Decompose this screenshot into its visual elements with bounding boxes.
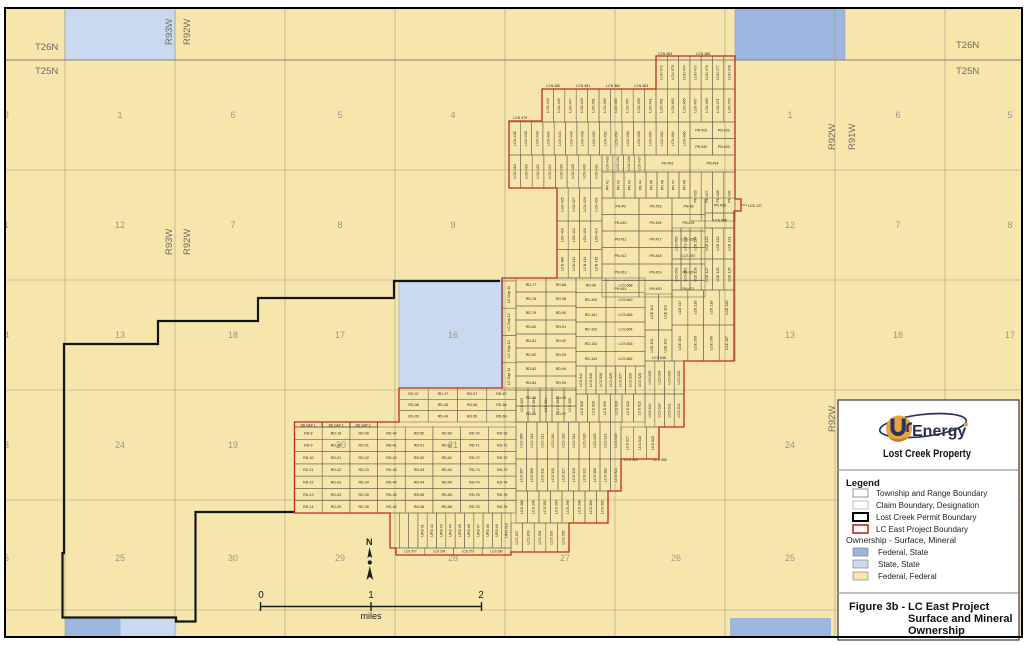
svg-text:RD-95: RD-95 xyxy=(556,381,566,385)
svg-text:LCS 312: LCS 312 xyxy=(540,434,544,448)
svg-text:RD-31: RD-31 xyxy=(359,444,369,448)
svg-text:R93W: R93W xyxy=(164,229,175,255)
svg-text:PN #24: PN #24 xyxy=(683,221,695,225)
svg-text:RD-84: RD-84 xyxy=(526,381,536,385)
svg-text:UFO #6: UFO #6 xyxy=(467,524,471,537)
svg-text:RD-10: RD-10 xyxy=(303,456,313,460)
svg-text:LCN 454: LCN 454 xyxy=(615,131,619,145)
svg-text:RD-79: RD-79 xyxy=(526,311,536,315)
svg-text:RD-59: RD-59 xyxy=(467,415,477,419)
svg-text:RD GAP 1: RD GAP 1 xyxy=(301,423,316,427)
svg-text:RD-68: RD-68 xyxy=(496,403,506,407)
svg-text:RD-43: RD-43 xyxy=(386,468,396,472)
svg-text:LC East Project Boundary: LC East Project Boundary xyxy=(876,525,968,534)
svg-text:RD-53: RD-53 xyxy=(414,468,424,472)
svg-text:LCS 313: LCS 313 xyxy=(530,434,534,448)
svg-text:RD-78: RD-78 xyxy=(497,431,507,435)
svg-text:UFO #7: UFO #7 xyxy=(477,524,481,537)
svg-text:LC Gap 13: LC Gap 13 xyxy=(507,340,511,357)
svg-text:LCN 477: LCN 477 xyxy=(716,65,720,79)
svg-text:LCS 378: LCS 378 xyxy=(433,550,446,554)
svg-text:LCN 457: LCN 457 xyxy=(626,98,630,112)
svg-text:PN #4: PN #4 xyxy=(639,180,643,190)
svg-text:N: N xyxy=(366,537,373,547)
svg-text:RD-49: RD-49 xyxy=(438,415,448,419)
svg-text:RD-35: RD-35 xyxy=(359,493,369,497)
svg-text:RD-11: RD-11 xyxy=(303,468,313,472)
svg-text:T25N: T25N xyxy=(956,66,979,77)
svg-text:RD-74: RD-74 xyxy=(497,481,507,485)
svg-text:RD-52: RD-52 xyxy=(414,456,424,460)
svg-text:LCN 471: LCN 471 xyxy=(716,98,720,112)
svg-text:RD-104: RD-104 xyxy=(585,357,597,361)
svg-text:LCE 101: LCE 101 xyxy=(650,339,654,353)
svg-text:RD-38: RD-38 xyxy=(408,403,418,407)
svg-text:LCN 458: LCN 458 xyxy=(637,131,641,145)
svg-text:PN #14: PN #14 xyxy=(615,287,627,291)
svg-text:LCN 483: LCN 483 xyxy=(634,84,648,88)
svg-text:T26N: T26N xyxy=(956,40,979,51)
svg-text:RD-33: RD-33 xyxy=(359,468,369,472)
svg-text:RD-39: RD-39 xyxy=(408,415,418,419)
svg-text:LCS 209: LCS 209 xyxy=(527,531,531,545)
svg-text:PN #12: PN #12 xyxy=(615,254,627,258)
svg-text:LCN 473: LCN 473 xyxy=(694,65,698,79)
svg-text:RD-47: RD-47 xyxy=(438,392,448,396)
svg-text:RD-72: RD-72 xyxy=(497,456,507,460)
svg-text:LCN 475: LCN 475 xyxy=(671,65,675,79)
svg-text:RD-72: RD-72 xyxy=(469,456,479,460)
svg-text:PN #18: PN #18 xyxy=(650,254,662,258)
svg-text:UFO #3: UFO #3 xyxy=(439,524,443,537)
svg-text:UFO #1: UFO #1 xyxy=(421,524,425,537)
svg-text:LCS 657: LCS 657 xyxy=(682,254,696,258)
svg-text:LCE 124: LCE 124 xyxy=(694,237,698,251)
svg-text:13: 13 xyxy=(785,330,795,340)
svg-text:RD-101: RD-101 xyxy=(585,313,597,317)
svg-text:LCS 626: LCS 626 xyxy=(582,434,586,448)
svg-text:RD-61: RD-61 xyxy=(442,444,452,448)
svg-text:LCS 623: LCS 623 xyxy=(593,434,597,448)
svg-text:8: 8 xyxy=(1007,220,1012,230)
svg-text:PN #9: PN #9 xyxy=(616,204,626,208)
svg-text:LCE 107: LCE 107 xyxy=(725,336,729,350)
svg-text:RD-50: RD-50 xyxy=(414,431,424,435)
svg-text:2: 2 xyxy=(478,590,484,601)
svg-text:PN #21: PN #21 xyxy=(683,287,695,291)
svg-text:LCS 621: LCS 621 xyxy=(668,404,672,418)
svg-text:RD-67: RD-67 xyxy=(496,392,506,396)
svg-text:LCS 298: LCS 298 xyxy=(577,500,581,514)
svg-text:25: 25 xyxy=(115,553,125,563)
svg-text:R91W: R91W xyxy=(847,124,858,150)
svg-text:LCS 305: LCS 305 xyxy=(568,398,572,412)
svg-text:LCE 102: LCE 102 xyxy=(663,339,667,353)
svg-text:LCS 300: LCS 300 xyxy=(589,500,593,514)
svg-text:Federal, Federal: Federal, Federal xyxy=(878,572,937,581)
svg-text:R92W: R92W xyxy=(827,124,838,150)
svg-text:T25N: T25N xyxy=(35,66,58,77)
svg-text:RD-69: RD-69 xyxy=(496,415,506,419)
svg-text:RD-76: RD-76 xyxy=(497,505,507,509)
svg-text:RD-40: RD-40 xyxy=(386,431,396,435)
svg-text:RD-45: RD-45 xyxy=(386,493,396,497)
svg-text:LCN 424: LCN 424 xyxy=(548,164,552,178)
svg-text:Energy: Energy xyxy=(912,423,966,440)
svg-text:LCS 928: LCS 928 xyxy=(580,401,584,415)
svg-text:LCN 464: LCN 464 xyxy=(671,131,675,145)
svg-text:RD-62: RD-62 xyxy=(442,456,452,460)
svg-text:LCN 426: LCN 426 xyxy=(559,164,563,178)
svg-text:LCN 440: LCN 440 xyxy=(535,131,539,145)
svg-text:LCN 411: LCN 411 xyxy=(572,257,576,271)
svg-text:RD-14: RD-14 xyxy=(303,505,313,509)
svg-text:12: 12 xyxy=(785,220,795,230)
svg-text:LCS 627: LCS 627 xyxy=(619,373,623,387)
svg-text:RD-25: RD-25 xyxy=(331,505,341,509)
svg-text:RD-41: RD-41 xyxy=(386,444,396,448)
svg-text:LCN 422: LCN 422 xyxy=(536,164,540,178)
svg-text:RD-58: RD-58 xyxy=(467,403,477,407)
svg-text:LCS 650: LCS 650 xyxy=(675,237,679,251)
svg-text:LCS 314: LCS 314 xyxy=(572,434,576,448)
svg-text:LCS 648: LCS 648 xyxy=(652,356,666,360)
svg-text:RD-22: RD-22 xyxy=(331,468,341,472)
svg-text:LCN 482: LCN 482 xyxy=(606,84,620,88)
svg-text:RD-83: RD-83 xyxy=(526,367,536,371)
svg-text:RD-19: RD-19 xyxy=(331,431,341,435)
svg-text:LCS 621: LCS 621 xyxy=(603,434,607,448)
svg-text:R92W: R92W xyxy=(182,229,193,255)
svg-text:LCS 938: LCS 938 xyxy=(599,373,603,387)
svg-text:LCN 460: LCN 460 xyxy=(649,131,653,145)
svg-text:PN #28: PN #28 xyxy=(716,191,720,203)
svg-text:7: 7 xyxy=(230,220,235,230)
svg-text:LCS 377: LCS 377 xyxy=(404,550,417,554)
svg-text:LCS 317: LCS 317 xyxy=(561,468,565,482)
svg-text:LCE 114: LCE 114 xyxy=(650,305,654,319)
svg-text:PN #6: PN #6 xyxy=(661,180,665,190)
svg-text:LCN 442: LCN 442 xyxy=(547,131,551,145)
svg-text:LCN 441: LCN 441 xyxy=(648,98,652,112)
svg-text:PN #25: PN #25 xyxy=(714,204,726,208)
svg-text:LCN 427: LCN 427 xyxy=(572,197,576,211)
svg-text:LCN 437: LCN 437 xyxy=(638,156,642,170)
svg-text:LCE 127: LCE 127 xyxy=(705,268,709,282)
svg-text:RD-82: RD-82 xyxy=(526,353,536,357)
svg-text:LCS 294: LCS 294 xyxy=(554,500,558,514)
svg-text:PN #32: PN #32 xyxy=(718,128,730,132)
svg-text:RD-51: RD-51 xyxy=(414,444,424,448)
svg-text:LCS 618: LCS 618 xyxy=(638,436,642,450)
svg-text:RD-24: RD-24 xyxy=(331,493,341,497)
svg-text:18: 18 xyxy=(228,330,238,340)
svg-text:LCN 410: LCN 410 xyxy=(583,228,587,242)
svg-text:RD-99: RD-99 xyxy=(586,284,596,288)
svg-text:LCS 656: LCS 656 xyxy=(713,219,727,223)
svg-text:RD-70: RD-70 xyxy=(469,431,479,435)
svg-text:LCN 478: LCN 478 xyxy=(728,65,732,79)
svg-text:LCE 128: LCE 128 xyxy=(694,268,698,282)
svg-text:Ownership: Ownership xyxy=(908,625,965,637)
svg-text:LCS 635: LCS 635 xyxy=(648,371,652,385)
svg-text:RD-71: RD-71 xyxy=(497,444,507,448)
svg-text:RD-88: RD-88 xyxy=(556,283,566,287)
svg-text:RD-73: RD-73 xyxy=(497,468,507,472)
svg-text:R92W: R92W xyxy=(827,406,838,432)
svg-text:13: 13 xyxy=(115,330,125,340)
svg-text:LCS 633: LCS 633 xyxy=(668,371,672,385)
svg-text:LCS 380: LCS 380 xyxy=(593,468,597,482)
svg-text:LCS 323: LCS 323 xyxy=(520,398,524,412)
svg-text:RD-66: RD-66 xyxy=(442,505,452,509)
svg-text:0: 0 xyxy=(258,590,264,601)
svg-text:LCN 476: LCN 476 xyxy=(705,65,709,79)
svg-text:RD-23: RD-23 xyxy=(331,481,341,485)
svg-text:LCN 432: LCN 432 xyxy=(594,164,598,178)
svg-text:RD-90: RD-90 xyxy=(556,311,566,315)
svg-text:LCN 447: LCN 447 xyxy=(569,98,573,112)
svg-text:RD-76: RD-76 xyxy=(469,505,479,509)
svg-text:6: 6 xyxy=(230,110,235,120)
svg-text:25: 25 xyxy=(785,553,795,563)
svg-text:PN #33: PN #33 xyxy=(718,145,730,149)
svg-text:LCE 118: LCE 118 xyxy=(694,301,698,315)
svg-text:PN #11: PN #11 xyxy=(615,237,627,241)
svg-text:Lost Creek Permit Boundary: Lost Creek Permit Boundary xyxy=(876,513,977,522)
svg-text:RD-92: RD-92 xyxy=(556,339,566,343)
svg-text:Ownership - Surface, Mineral: Ownership - Surface, Mineral xyxy=(846,535,956,545)
svg-text:LCS 620: LCS 620 xyxy=(658,404,662,418)
svg-text:RD-20: RD-20 xyxy=(331,444,341,448)
svg-text:RD-100: RD-100 xyxy=(585,298,597,302)
svg-text:30: 30 xyxy=(228,553,238,563)
svg-text:UFO #10: UFO #10 xyxy=(504,523,508,538)
svg-text:RD-48: RD-48 xyxy=(438,403,448,407)
svg-text:RD-78: RD-78 xyxy=(526,297,536,301)
svg-text:RD-30: RD-30 xyxy=(359,431,369,435)
svg-text:LCS 665: LCS 665 xyxy=(619,313,633,317)
svg-text:LC Gap 11: LC Gap 11 xyxy=(507,286,511,303)
svg-text:LCN 420: LCN 420 xyxy=(525,164,529,178)
svg-text:R93W: R93W xyxy=(164,19,175,45)
svg-text:RD-42: RD-42 xyxy=(386,456,396,460)
svg-text:LCN 434: LCN 434 xyxy=(616,156,620,170)
svg-text:PN #30: PN #30 xyxy=(695,145,707,149)
svg-text:RD-37: RD-37 xyxy=(408,392,418,396)
svg-text:LCN 452: LCN 452 xyxy=(603,131,607,145)
svg-text:LC East Project: LC East Project xyxy=(908,601,990,613)
svg-text:RD-77: RD-77 xyxy=(526,283,536,287)
svg-text:LCN 445: LCN 445 xyxy=(557,98,561,112)
svg-text:RD GAP 2: RD GAP 2 xyxy=(329,423,344,427)
svg-text:LCN 433: LCN 433 xyxy=(606,156,610,170)
svg-text:LCN 418: LCN 418 xyxy=(513,164,517,178)
svg-text:RD-75: RD-75 xyxy=(469,493,479,497)
svg-text:12: 12 xyxy=(115,220,125,230)
svg-text:PN #13: PN #13 xyxy=(615,270,627,274)
svg-text:PN #3: PN #3 xyxy=(628,180,632,190)
svg-text:LCS 311: LCS 311 xyxy=(540,468,544,482)
svg-text:RD-46: RD-46 xyxy=(386,505,396,509)
svg-text:4: 4 xyxy=(450,110,455,120)
svg-text:1: 1 xyxy=(787,110,792,120)
svg-text:RD-98: RD-98 xyxy=(556,297,566,301)
svg-text:LCN 461: LCN 461 xyxy=(660,98,664,112)
svg-text:UFO #8: UFO #8 xyxy=(486,524,490,537)
svg-text:T26N: T26N xyxy=(35,42,58,53)
svg-text:LCS 929: LCS 929 xyxy=(591,401,595,415)
svg-text:LCN 415: LCN 415 xyxy=(595,257,599,271)
svg-text:LCS 292: LCS 292 xyxy=(543,500,547,514)
svg-text:LCN 450: LCN 450 xyxy=(592,131,596,145)
svg-text:LCN 479: LCN 479 xyxy=(513,116,527,120)
svg-text:LCN 470: LCN 470 xyxy=(728,98,732,112)
svg-text:LCN 444: LCN 444 xyxy=(558,131,562,145)
svg-text:RD-64: RD-64 xyxy=(442,481,452,485)
svg-text:LCS 296: LCS 296 xyxy=(566,500,570,514)
svg-text:PN #1: PN #1 xyxy=(606,180,610,190)
svg-text:PN #16: PN #16 xyxy=(650,221,662,225)
svg-text:LCS 295: LCS 295 xyxy=(561,531,565,545)
svg-text:UFO #9: UFO #9 xyxy=(495,524,499,537)
svg-text:LCS 622: LCS 622 xyxy=(637,401,641,415)
svg-text:Claim Boundary, Designation: Claim Boundary, Designation xyxy=(876,501,979,510)
svg-text:17: 17 xyxy=(335,330,345,340)
svg-text:LCN 462: LCN 462 xyxy=(660,131,664,145)
svg-text:LCS 617: LCS 617 xyxy=(625,436,629,450)
svg-text:RD-34: RD-34 xyxy=(359,481,369,485)
svg-text:RD-94: RD-94 xyxy=(556,367,566,371)
svg-text:LCS 623: LCS 623 xyxy=(626,401,630,415)
svg-text:LCS 662: LCS 662 xyxy=(619,357,633,361)
svg-text:LCN 416: LCN 416 xyxy=(561,228,565,242)
svg-text:Figure 3b -: Figure 3b - xyxy=(849,601,906,613)
svg-text:RD-80: RD-80 xyxy=(526,325,536,329)
svg-text:PN #26: PN #26 xyxy=(728,191,732,203)
svg-text:24: 24 xyxy=(115,440,125,450)
svg-text:PN #2: PN #2 xyxy=(617,180,621,190)
svg-text:LCN 456: LCN 456 xyxy=(626,131,630,145)
svg-text:LCN 459: LCN 459 xyxy=(637,98,641,112)
svg-text:LCN 453: LCN 453 xyxy=(603,98,607,112)
svg-text:LCN 443: LCN 443 xyxy=(546,98,550,112)
svg-text:LCN 446: LCN 446 xyxy=(569,131,573,145)
svg-text:LCS 124: LCS 124 xyxy=(684,237,688,251)
svg-text:RD-8: RD-8 xyxy=(304,431,312,435)
svg-text:R92W: R92W xyxy=(182,19,193,45)
svg-text:Surface and Mineral: Surface and Mineral xyxy=(908,613,1013,625)
svg-text:LCS 385: LCS 385 xyxy=(519,434,523,448)
svg-text:9: 9 xyxy=(450,220,455,230)
svg-text:LCN 430: LCN 430 xyxy=(583,164,587,178)
svg-text:LCS 288: LCS 288 xyxy=(520,500,524,514)
svg-text:LCE 117: LCE 117 xyxy=(678,301,682,315)
svg-text:LCN 448: LCN 448 xyxy=(581,131,585,145)
svg-text:LCS 660: LCS 660 xyxy=(619,298,633,302)
svg-text:LCN 451: LCN 451 xyxy=(591,98,595,112)
svg-text:PN #15: PN #15 xyxy=(650,204,662,208)
svg-text:LCE 120: LCE 120 xyxy=(725,301,729,315)
svg-text:LCS 321: LCS 321 xyxy=(582,468,586,482)
svg-text:Lost Creek Property: Lost Creek Property xyxy=(883,448,972,460)
svg-text:LCS 307: LCS 307 xyxy=(519,468,523,482)
svg-text:LCS 632: LCS 632 xyxy=(677,371,681,385)
svg-text:UFO #5: UFO #5 xyxy=(458,524,462,537)
svg-text:PN #7: PN #7 xyxy=(672,180,676,190)
svg-text:PN #31: PN #31 xyxy=(662,162,674,166)
svg-text:LCN 469: LCN 469 xyxy=(705,98,709,112)
svg-text:LCS 631: LCS 631 xyxy=(677,404,681,418)
svg-text:LCS 624: LCS 624 xyxy=(648,404,652,418)
svg-text:RD-73: RD-73 xyxy=(469,468,479,472)
svg-text:LCS 626: LCS 626 xyxy=(614,401,618,415)
svg-text:LCN 438: LCN 438 xyxy=(513,131,517,145)
svg-text:1: 1 xyxy=(368,590,374,601)
svg-text:RD-54: RD-54 xyxy=(414,481,424,485)
svg-text:LCE 121: LCE 121 xyxy=(728,237,732,251)
svg-text:LCS 663: LCS 663 xyxy=(619,342,633,346)
svg-text:RD-57: RD-57 xyxy=(467,392,477,396)
svg-text:LCN 466: LCN 466 xyxy=(682,131,686,145)
svg-text:27: 27 xyxy=(560,553,570,563)
svg-text:LCN 463: LCN 463 xyxy=(671,98,675,112)
svg-text:LCN 465: LCN 465 xyxy=(682,98,686,112)
svg-text:LCN 489: LCN 489 xyxy=(561,257,565,271)
svg-text:RD-56: RD-56 xyxy=(414,505,424,509)
svg-text:PN #10: PN #10 xyxy=(615,221,627,225)
svg-text:RD-65: RD-65 xyxy=(442,493,452,497)
svg-text:PN #29: PN #29 xyxy=(695,128,707,132)
svg-text:RD-44: RD-44 xyxy=(386,481,396,485)
svg-text:LCN 412: LCN 412 xyxy=(572,228,576,242)
svg-text:RD GAP 3: RD GAP 3 xyxy=(356,423,371,427)
svg-text:LCS 625: LCS 625 xyxy=(629,373,633,387)
svg-text:29: 29 xyxy=(335,553,345,563)
svg-text:LCS 364: LCS 364 xyxy=(532,398,536,412)
svg-text:LCS 619: LCS 619 xyxy=(614,434,618,448)
svg-text:LCE 104: LCE 104 xyxy=(678,336,682,350)
svg-text:Township and Range Boundary: Township and Range Boundary xyxy=(876,489,987,498)
svg-text:PN #27: PN #27 xyxy=(705,191,709,203)
svg-text:Legend: Legend xyxy=(846,478,880,489)
svg-text:LCS 315: LCS 315 xyxy=(551,468,555,482)
svg-text:miles: miles xyxy=(360,611,382,621)
svg-text:LCE 125: LCE 125 xyxy=(728,268,732,282)
svg-text:Federal, State: Federal, State xyxy=(878,548,929,557)
svg-text:LCS 382: LCS 382 xyxy=(603,468,607,482)
svg-text:RD-102: RD-102 xyxy=(585,328,597,332)
svg-text:UFO #2: UFO #2 xyxy=(430,524,434,537)
svg-text:16: 16 xyxy=(448,330,458,340)
svg-text:PN #25: PN #25 xyxy=(694,191,698,203)
svg-text:LCN 425: LCN 425 xyxy=(561,197,565,211)
svg-text:LCE 105: LCE 105 xyxy=(694,336,698,350)
svg-text:24: 24 xyxy=(785,440,795,450)
svg-text:LCS 634: LCS 634 xyxy=(658,371,662,385)
svg-text:LCN 467: LCN 467 xyxy=(694,98,698,112)
svg-text:LCS 930: LCS 930 xyxy=(603,401,607,415)
svg-text:LCS 620: LCS 620 xyxy=(651,436,655,450)
svg-text:LCN 428: LCN 428 xyxy=(571,164,575,178)
svg-text:LCS 921: LCS 921 xyxy=(614,468,618,482)
svg-text:LCS 291: LCS 291 xyxy=(538,531,542,545)
svg-text:26: 26 xyxy=(671,553,681,563)
svg-text:PN #5: PN #5 xyxy=(650,180,654,190)
svg-text:17: 17 xyxy=(1005,330,1015,340)
svg-text:LCS 940: LCS 940 xyxy=(589,373,593,387)
svg-text:LCE 122: LCE 122 xyxy=(716,237,720,251)
